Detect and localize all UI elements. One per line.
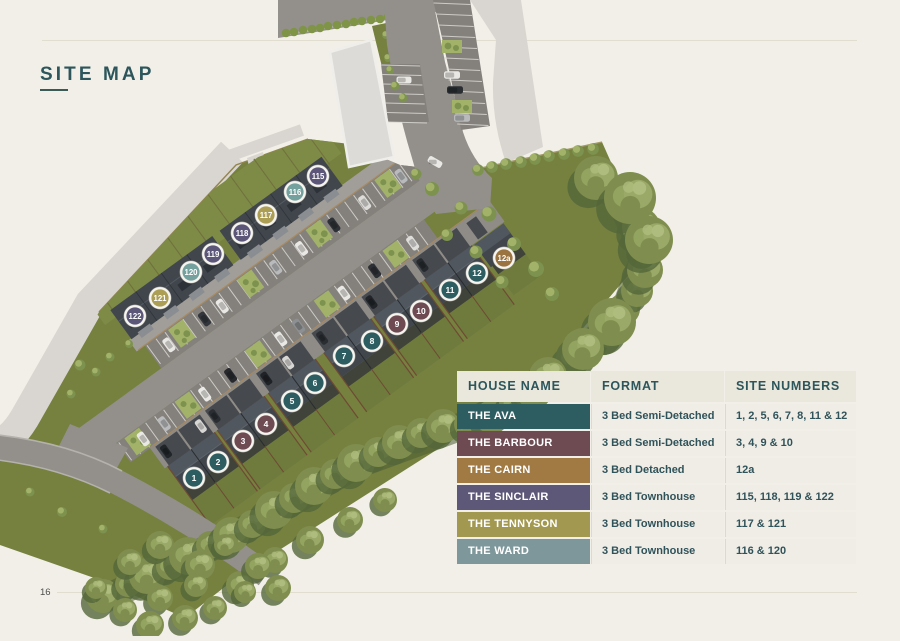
svg-text:7: 7 (342, 351, 347, 361)
svg-text:121: 121 (153, 294, 167, 303)
svg-text:10: 10 (416, 306, 426, 316)
svg-text:3: 3 (241, 436, 246, 446)
svg-text:117: 117 (260, 211, 273, 220)
svg-text:12: 12 (472, 268, 482, 278)
svg-text:6: 6 (313, 378, 318, 388)
svg-text:12a: 12a (497, 254, 511, 263)
svg-text:8: 8 (370, 336, 375, 346)
svg-text:11: 11 (446, 285, 455, 295)
svg-text:119: 119 (207, 250, 220, 259)
svg-text:118: 118 (236, 229, 249, 238)
svg-text:5: 5 (290, 396, 295, 406)
svg-text:9: 9 (395, 319, 400, 329)
svg-text:122: 122 (128, 312, 142, 321)
svg-text:1: 1 (192, 473, 197, 483)
svg-text:116: 116 (289, 188, 302, 197)
svg-text:115: 115 (312, 172, 325, 181)
svg-text:120: 120 (184, 268, 198, 277)
svg-text:2: 2 (216, 457, 221, 467)
svg-text:4: 4 (264, 419, 269, 429)
